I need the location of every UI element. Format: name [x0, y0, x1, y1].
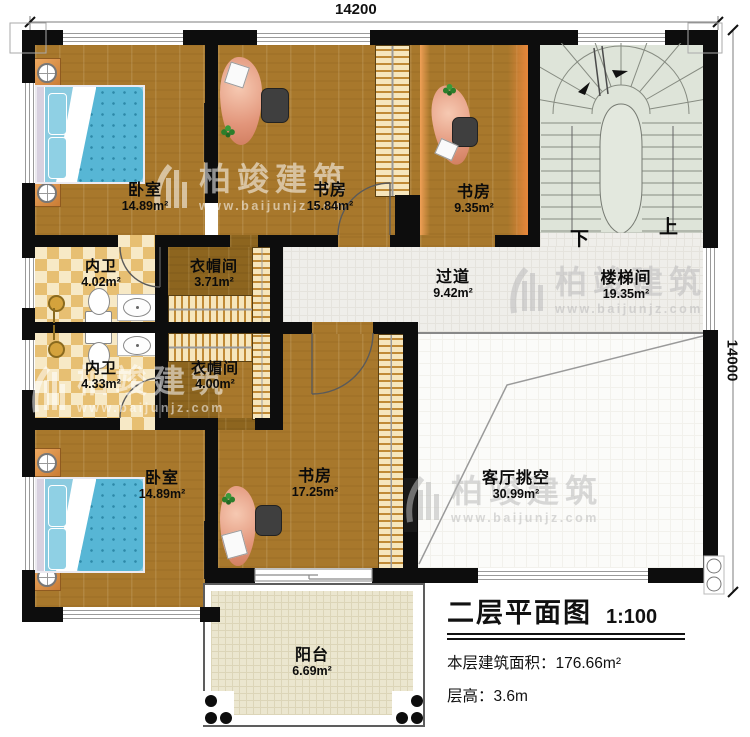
room-label-cloak1: 衣帽间3.71m²	[190, 259, 238, 289]
balcony-corner-cutout	[203, 691, 234, 725]
room-label-bedroom1: 卧室14.89m²	[122, 182, 169, 213]
doorway-floor	[312, 322, 373, 334]
bed	[35, 477, 145, 573]
balcony-corner-cutout	[392, 691, 423, 725]
tv-panel	[404, 478, 417, 532]
room-label-void: 客厅挑空30.99m²	[482, 470, 550, 501]
wall	[395, 195, 420, 247]
wall	[403, 322, 418, 583]
room-label-bath2: 内卫4.33m²	[81, 361, 121, 391]
office-chair	[261, 88, 289, 123]
room-floor-stairwell	[540, 43, 703, 233]
window	[22, 258, 35, 308]
plan-scale: 1:100	[606, 607, 657, 627]
room-label-cloak2: 衣帽间4.00m²	[191, 361, 239, 391]
plan-title: 二层平面图	[447, 600, 592, 627]
wall	[22, 235, 118, 247]
wall	[255, 418, 283, 430]
pillow	[48, 93, 67, 135]
pillow	[48, 137, 67, 179]
nightstand	[33, 448, 61, 477]
wall	[160, 418, 205, 430]
lamp-icon	[37, 183, 57, 203]
window	[257, 30, 370, 45]
lamp-icon	[37, 453, 57, 473]
bed-headboard	[37, 479, 45, 571]
window	[22, 83, 35, 183]
balcony-sliding-door	[255, 569, 372, 581]
nightstand	[33, 58, 61, 87]
window	[478, 568, 648, 583]
plant-icon	[221, 124, 235, 138]
floor-plan-page: 柏竣建筑 www.baijunjz.com 柏竣建筑 www.baijunjz.…	[0, 0, 750, 737]
cabinet-strip	[420, 45, 430, 235]
room-label-bedroom2: 卧室14.89m²	[139, 470, 186, 501]
room-label-corridor: 过道9.42m²	[433, 269, 473, 300]
stair-down-label: 下	[570, 224, 589, 251]
wall	[22, 418, 120, 430]
title-block: 二层平面图 1:100 本层建筑面积：176.66m² 层高：3.6m	[447, 600, 685, 706]
window	[63, 607, 200, 622]
office-chair	[452, 117, 478, 147]
window	[22, 477, 35, 570]
floor-area-line: 本层建筑面积：176.66m²	[447, 651, 685, 673]
doorway-floor	[118, 235, 160, 247]
wall	[22, 322, 155, 333]
window	[22, 340, 35, 390]
room-floor-void	[418, 334, 703, 568]
pillow	[48, 485, 67, 527]
wall	[212, 568, 255, 583]
wall	[205, 45, 218, 203]
dimension-top: 14200	[335, 1, 377, 18]
plant-icon	[222, 492, 235, 505]
doorway-floor	[120, 418, 160, 430]
room-label-bath1: 内卫4.02m²	[81, 259, 121, 289]
doorway-floor	[338, 235, 390, 247]
floor-height-line: 层高：3.6m	[447, 684, 685, 706]
wardrobe-strip	[375, 45, 410, 197]
doorway-floor	[420, 235, 495, 247]
room-label-study2: 书房9.35m²	[454, 184, 494, 215]
dimension-right: 14000	[724, 337, 741, 385]
bed	[35, 85, 145, 184]
wall	[270, 235, 283, 430]
toilet	[88, 288, 110, 315]
pillow	[48, 528, 67, 570]
shower-head	[48, 295, 65, 312]
shower-head	[48, 341, 65, 358]
wall	[155, 322, 283, 333]
room-label-study3: 书房17.25m²	[292, 468, 339, 499]
cabinet-strip	[508, 45, 528, 235]
wall	[528, 30, 540, 247]
title-underline	[447, 633, 685, 640]
window	[703, 248, 718, 330]
wardrobe-strip	[168, 295, 254, 324]
sink	[123, 336, 151, 355]
room-label-balcony: 阳台6.69m²	[292, 647, 332, 678]
bed-headboard	[37, 87, 45, 182]
wardrobe-strip	[252, 247, 272, 324]
room-label-study1: 书房15.84m²	[307, 182, 354, 213]
wardrobe-strip	[252, 333, 272, 420]
wardrobe-strip	[168, 333, 254, 362]
stair-up-label: 上	[659, 212, 678, 239]
window	[63, 30, 183, 45]
wardrobe-strip	[378, 334, 405, 570]
wall	[205, 418, 218, 583]
wall	[160, 235, 230, 247]
window	[578, 30, 665, 45]
doorway-floor	[230, 235, 258, 247]
wall	[283, 322, 312, 334]
sink	[123, 298, 151, 317]
room-label-stairwell: 楼梯间19.35m²	[600, 270, 651, 301]
room-floor-stairhall	[540, 233, 703, 247]
plant-icon	[443, 83, 456, 96]
lamp-icon	[37, 63, 57, 83]
office-chair	[255, 505, 282, 536]
